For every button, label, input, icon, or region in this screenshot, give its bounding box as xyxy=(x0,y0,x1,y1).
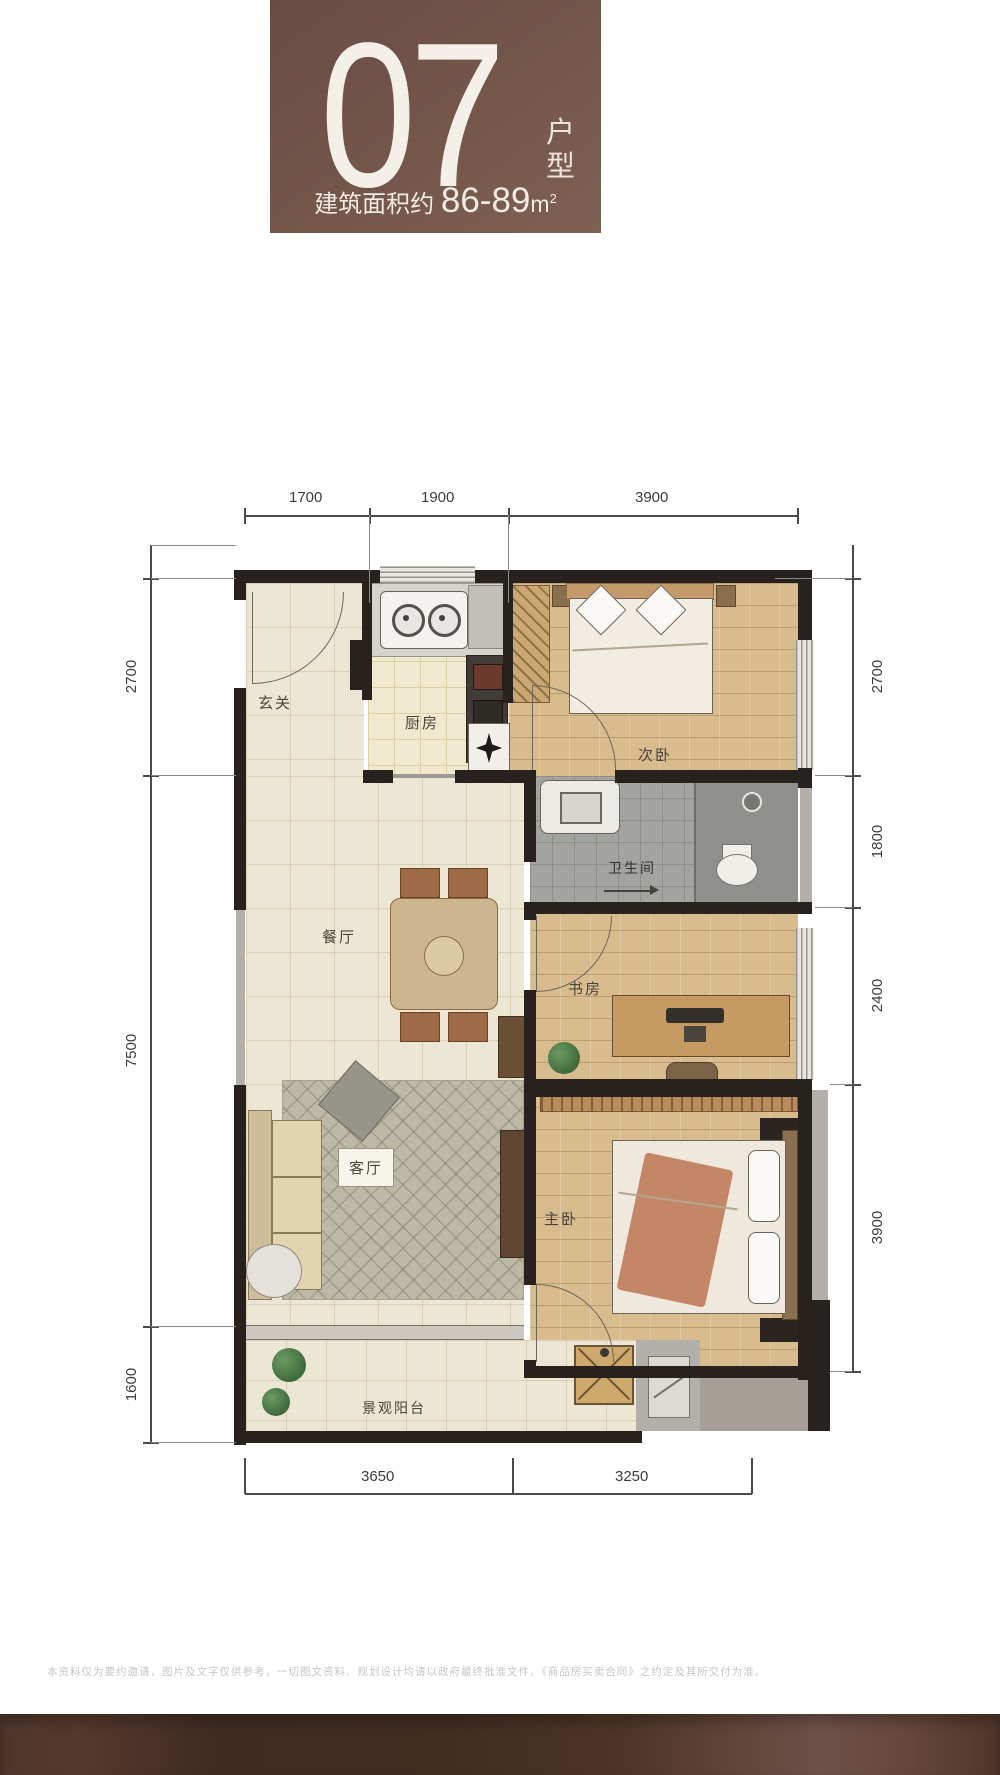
dining-chair-bottom-right xyxy=(448,1012,488,1042)
room-label-master-bedroom: 主卧 xyxy=(544,1208,578,1229)
bathroom-entry-arrow-line xyxy=(604,890,650,892)
right-ledge xyxy=(812,1090,828,1300)
room-label-entry: 玄关 xyxy=(258,692,292,713)
dim-ext-top-3 xyxy=(508,515,509,603)
kitchen-slider xyxy=(393,774,455,778)
dim-ext-right-5 xyxy=(830,1371,852,1372)
desk-keyboard xyxy=(684,1026,706,1042)
area-exponent: 2 xyxy=(550,191,557,206)
dim-right-1: 2700 xyxy=(869,657,886,696)
dim-ext-left-4 xyxy=(151,1442,236,1443)
dim-ext-top-2 xyxy=(369,515,370,603)
wall-left-corner xyxy=(234,570,246,600)
nightstand-right xyxy=(716,585,736,607)
dim-tick-top-1 xyxy=(244,508,246,524)
area-prefix: 建筑面积约 xyxy=(314,191,434,218)
desk-monitor xyxy=(666,1008,724,1023)
toilet-bowl xyxy=(716,854,758,886)
dim-line-top xyxy=(245,515,798,517)
room-label-study: 书房 xyxy=(568,978,602,999)
wall-kitchen-bottom-right xyxy=(455,770,530,783)
shower-head xyxy=(742,792,762,812)
dim-line-right xyxy=(852,545,854,1372)
wall-secondary-bottom xyxy=(615,770,798,783)
dim-tick-bottom-3 xyxy=(751,1458,753,1494)
wall-study-master xyxy=(524,1079,812,1097)
master-pillow-top xyxy=(748,1150,780,1222)
balcony-plant-large xyxy=(272,1348,306,1382)
unit-type-label: 户 型 xyxy=(546,116,575,184)
room-label-dining: 餐厅 xyxy=(322,926,356,947)
wall-bath-left xyxy=(524,776,536,862)
dining-table-center xyxy=(424,936,464,976)
bottom-brown-bar xyxy=(0,1714,1000,1775)
dim-tick-top-4 xyxy=(797,508,799,524)
dim-line-left xyxy=(150,545,152,1443)
dim-top-1: 1700 xyxy=(286,489,325,506)
dim-left-3: 1600 xyxy=(123,1365,140,1404)
area-value: 86-89 xyxy=(441,181,531,220)
wall-master-bottom xyxy=(536,1366,812,1378)
sofa-cushion-line-1 xyxy=(272,1176,322,1178)
bathroom-entry-arrow-head xyxy=(650,885,659,895)
dim-ext-left-3 xyxy=(151,1326,236,1327)
room-label-balcony: 景观阳台 xyxy=(362,1398,426,1418)
dim-top-2: 1900 xyxy=(418,489,457,506)
wall-left-lower xyxy=(234,1085,246,1445)
master-pillow-bottom xyxy=(748,1232,780,1304)
room-label-living: 客厅 xyxy=(349,1160,383,1177)
vanity-basin xyxy=(560,792,602,824)
unit-badge: 07 户 型 建筑面积约 86-89m2 xyxy=(270,0,601,233)
wall-left-mid xyxy=(234,688,246,910)
dim-tick-bottom-1 xyxy=(244,1458,246,1494)
fridge xyxy=(468,585,507,649)
study-window xyxy=(796,928,814,1080)
tv-console xyxy=(500,1130,526,1258)
dim-ext-right-4 xyxy=(830,1084,852,1085)
dim-line-bottom xyxy=(245,1493,752,1495)
wall-right-top xyxy=(798,570,812,640)
dim-ext-right-1 xyxy=(775,578,852,579)
balcony-sill xyxy=(246,1325,524,1340)
wall-right-bath xyxy=(800,788,812,908)
unit-type-char-1: 户 xyxy=(546,116,575,150)
room-label-bathroom: 卫生间 xyxy=(608,858,656,878)
unit-type-char-2: 型 xyxy=(546,150,575,184)
dim-tick-bottom-2 xyxy=(512,1458,514,1494)
wall-top-left xyxy=(234,570,380,583)
dim-ext-right-2 xyxy=(815,775,852,776)
dim-ext-left-1 xyxy=(151,578,236,579)
secondary-bedroom-window xyxy=(796,640,814,770)
room-label-secondary-bedroom: 次卧 xyxy=(638,744,672,765)
master-door-knob xyxy=(600,1348,609,1357)
dim-bottom-1: 3650 xyxy=(358,1468,397,1485)
wall-study-left-bottom xyxy=(524,990,536,1085)
wall-master-left xyxy=(524,1097,536,1285)
stove-burner-top xyxy=(473,664,503,690)
kitchen-top-window xyxy=(380,566,475,583)
dim-ext-right-3 xyxy=(815,907,852,908)
dim-ext-left-top xyxy=(151,545,236,546)
wall-right-stub1 xyxy=(798,768,812,788)
dim-right-4: 3900 xyxy=(869,1208,886,1247)
area-unit: m xyxy=(530,191,549,217)
sink-drain-left xyxy=(403,615,409,621)
disclaimer-text: 本资料仅为要约邀请，图片及文字仅供参考，一切图文资料、规划设计均请以政府最终批准… xyxy=(47,1664,957,1679)
floorplan-page: 07 户 型 建筑面积约 86-89m2 xyxy=(0,0,1000,1775)
wall-study-left-top xyxy=(524,908,536,920)
dining-chair-top-right xyxy=(448,868,488,898)
side-table xyxy=(246,1244,302,1298)
dim-right-2: 1800 xyxy=(869,822,886,861)
wall-balcony-bottom xyxy=(234,1431,642,1443)
column-entry-kitchen xyxy=(350,640,372,690)
living-label-box: 客厅 xyxy=(338,1148,394,1187)
wall-kitchen-bottom-left xyxy=(363,770,393,783)
dining-chair-bottom-left xyxy=(400,1012,440,1042)
wall-top-right xyxy=(475,570,812,583)
shower-divider xyxy=(694,776,696,908)
hall-cabinet xyxy=(498,1016,526,1078)
dim-bottom-2: 3250 xyxy=(612,1468,651,1485)
dim-ext-left-2 xyxy=(151,775,236,776)
dim-top-3: 3900 xyxy=(632,489,671,506)
dim-left-1: 2700 xyxy=(123,657,140,696)
master-nightstand-bottom xyxy=(760,1318,798,1342)
room-label-kitchen: 厨房 xyxy=(405,712,439,733)
sink-basin-left xyxy=(392,604,425,637)
dim-right-3: 2400 xyxy=(869,976,886,1015)
balcony-plant-small xyxy=(262,1388,290,1416)
wall-bath-bottom xyxy=(524,902,812,914)
sink-basin-right xyxy=(428,604,461,637)
study-plant xyxy=(548,1042,580,1074)
area-line: 建筑面积约 86-89m2 xyxy=(270,181,601,221)
sofa-cushion-line-2 xyxy=(272,1232,322,1234)
dim-left-2: 7500 xyxy=(123,1031,140,1070)
sink-drain-right xyxy=(439,615,445,621)
dining-chair-top-left xyxy=(400,868,440,898)
wall-master-left-stub xyxy=(524,1360,536,1378)
left-window-band xyxy=(236,910,245,1085)
